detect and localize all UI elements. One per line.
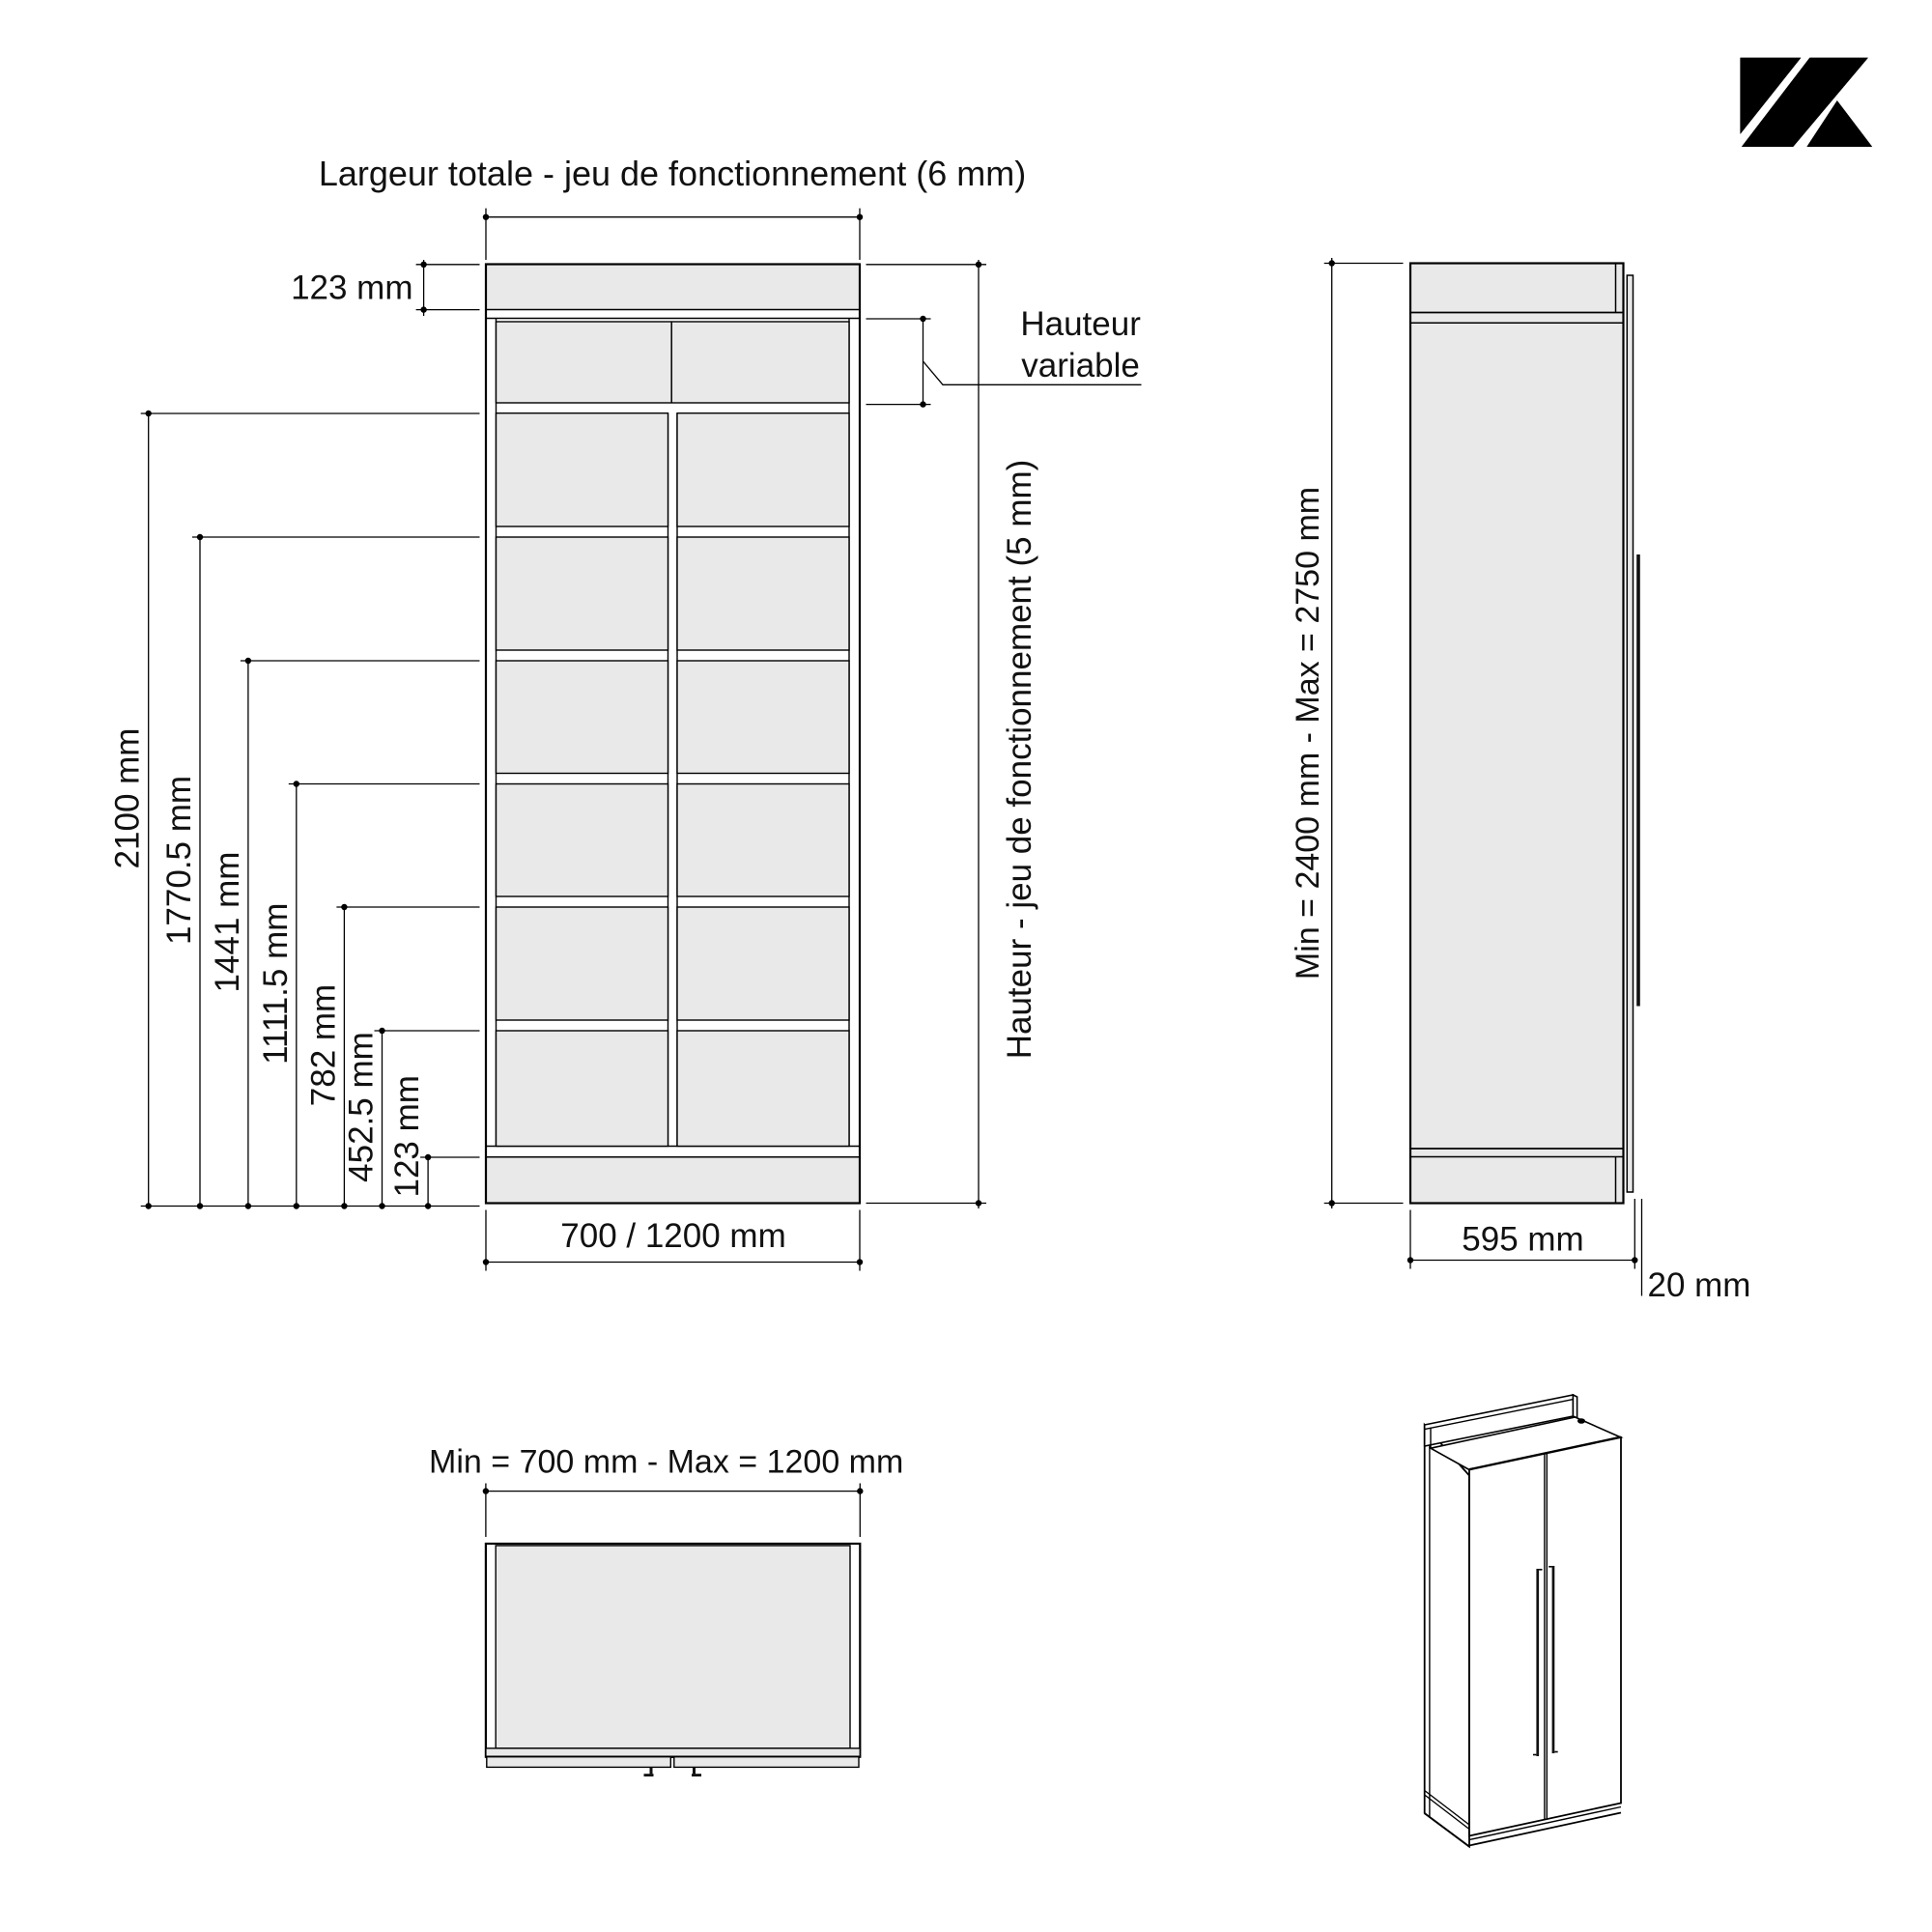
- svg-text:Min = 2400 mm - Max = 2750 mm: Min = 2400 mm - Max = 2750 mm: [1290, 487, 1326, 980]
- svg-text:700 / 1200 mm: 700 / 1200 mm: [560, 1217, 785, 1255]
- svg-text:1111.5 mm: 1111.5 mm: [257, 903, 295, 1065]
- svg-text:123 mm: 123 mm: [388, 1075, 426, 1197]
- svg-text:595 mm: 595 mm: [1462, 1221, 1583, 1259]
- svg-text:Hauteur: Hauteur: [1020, 305, 1141, 343]
- svg-text:Hauteur - jeu de fonctionnemen: Hauteur - jeu de fonctionnement (5 mm): [1001, 460, 1038, 1060]
- svg-text:1770.5 mm: 1770.5 mm: [160, 776, 198, 945]
- svg-text:2100 mm: 2100 mm: [109, 728, 147, 869]
- svg-text:variable: variable: [1021, 347, 1140, 384]
- svg-text:Min = 700 mm - Max = 1200 mm: Min = 700 mm - Max = 1200 mm: [429, 1444, 903, 1481]
- svg-text:1441 mm: 1441 mm: [209, 852, 246, 993]
- svg-text:Largeur totale - jeu de foncti: Largeur totale - jeu de fonctionnement (…: [319, 154, 1026, 193]
- svg-text:20 mm: 20 mm: [1648, 1266, 1751, 1304]
- svg-text:782 mm: 782 mm: [304, 984, 342, 1106]
- svg-text:452.5 mm: 452.5 mm: [343, 1032, 381, 1182]
- svg-text:123 mm: 123 mm: [291, 270, 412, 307]
